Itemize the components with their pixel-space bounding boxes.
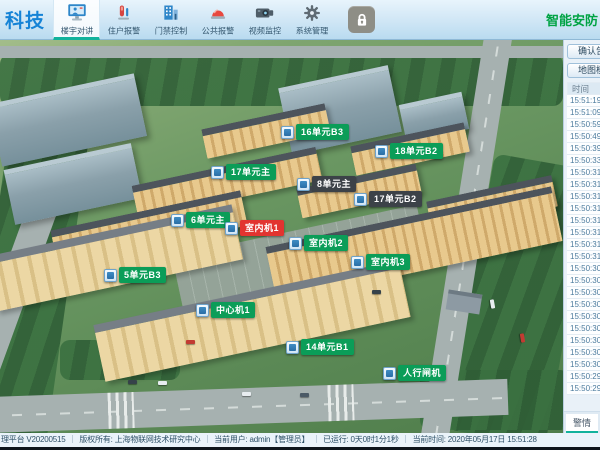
status-item: 当前用户: admin【管理员】 — [214, 435, 309, 444]
lock-icon[interactable] — [348, 6, 375, 33]
main-area: 16单元B318单元B217单元主8单元主17单元B26单元主室内机1室内机2室… — [0, 40, 600, 433]
status-separator: ｜ — [203, 435, 211, 444]
map-car — [158, 381, 167, 385]
alarm-time-row[interactable]: 15:50:31 — [567, 227, 600, 239]
status-item: 理平台 V20200515 — [1, 435, 66, 444]
device-marker[interactable]: 17单元主 — [211, 164, 276, 180]
device-icon — [196, 304, 209, 317]
alarm-time-row[interactable]: 15:50:30 — [567, 299, 600, 311]
device-marker[interactable]: 16单元B3 — [281, 124, 349, 140]
device-icon — [383, 367, 396, 380]
alarm-time-row[interactable]: 15:50:59 — [567, 119, 600, 131]
toolbar-item-label: 住户报警 — [107, 24, 139, 36]
map-car — [300, 393, 309, 397]
device-label: 17单元主 — [226, 164, 276, 180]
alarm-time-row[interactable]: 15:50:39 — [567, 143, 600, 155]
alarm-time-row[interactable]: 15:50:30 — [567, 347, 600, 359]
alarm-time-row[interactable]: 15:50:33 — [567, 155, 600, 167]
brand-logo: 科技 — [5, 6, 45, 33]
toolbar-item-label: 公共报警 — [201, 24, 233, 36]
map-car — [128, 380, 137, 384]
device-marker[interactable]: 中心机1 — [196, 302, 255, 318]
system-settings-icon — [302, 2, 322, 23]
road-centerline — [0, 397, 508, 417]
crosswalk — [107, 392, 134, 429]
alarm-time-row[interactable]: 15:50:30 — [567, 275, 600, 287]
device-marker[interactable]: 室内机1 — [225, 220, 284, 236]
status-item: 已运行: 0天0时1分1秒 — [323, 435, 399, 444]
device-label: 人行闸机 — [398, 365, 446, 381]
alarm-time-row[interactable]: 15:50:30 — [567, 359, 600, 371]
device-icon — [297, 178, 310, 191]
device-label: 中心机1 — [211, 302, 255, 318]
time-column-header: 时间 — [567, 82, 600, 95]
device-label: 室内机1 — [240, 220, 284, 236]
alarm-time-row[interactable]: 15:50:30 — [567, 311, 600, 323]
intercom-icon — [66, 2, 88, 23]
device-label: 14单元B1 — [301, 339, 354, 355]
toolbar-item-resident-alarm[interactable]: 住户报警 — [100, 0, 147, 40]
toolbar-item-label: 系统管理 — [295, 24, 327, 36]
device-marker[interactable]: 6单元主 — [171, 212, 230, 228]
status-separator: ｜ — [312, 435, 320, 444]
device-icon — [289, 237, 302, 250]
alarm-time-row[interactable]: 15:50:31 — [567, 251, 600, 263]
device-marker[interactable]: 5单元B3 — [104, 267, 166, 283]
alarm-time-row[interactable]: 15:51:19 — [567, 95, 600, 107]
device-label: 6单元主 — [186, 212, 230, 228]
community-map[interactable]: 16单元B318单元B217单元主8单元主17单元B26单元主室内机1室内机2室… — [0, 40, 563, 433]
public-alarm-icon — [208, 2, 228, 23]
device-marker[interactable]: 18单元B2 — [375, 143, 443, 159]
toolbar-item-label: 楼宇对讲 — [60, 24, 92, 36]
status-separator: ｜ — [402, 435, 410, 444]
device-icon — [286, 341, 299, 354]
alarm-time-row[interactable]: 15:50:30 — [567, 323, 600, 335]
device-label: 8单元主 — [312, 176, 356, 192]
tab-alarm[interactable]: 警情 — [566, 414, 598, 433]
device-marker[interactable]: 8单元主 — [297, 176, 356, 192]
footer: 理平台 V20200515｜版权所有: 上海物联网技术研究中心｜当前用户: ad… — [0, 433, 600, 450]
alarm-time-row[interactable]: 15:50:29 — [567, 371, 600, 383]
toolbar-item-intercom[interactable]: 楼宇对讲 — [53, 0, 100, 40]
main-toolbar: 楼宇对讲住户报警门禁控制公共报警视频监控系统管理 — [53, 0, 335, 40]
alarm-time-list[interactable]: 15:51:1915:51:0915:50:5915:50:4915:50:39… — [567, 95, 600, 397]
toolbar-item-public-alarm[interactable]: 公共报警 — [194, 0, 241, 40]
device-label: 5单元B3 — [119, 267, 166, 283]
map-mode-button[interactable]: 地图模式 — [567, 63, 600, 78]
alarm-time-row[interactable]: 15:50:31 — [567, 239, 600, 251]
alarm-time-row[interactable]: 15:50:49 — [567, 131, 600, 143]
alarm-time-row[interactable]: 15:51:09 — [567, 107, 600, 119]
alarm-time-row[interactable]: 15:50:31 — [567, 215, 600, 227]
device-icon — [211, 166, 224, 179]
video-monitor-icon — [254, 2, 276, 23]
device-label: 18单元B2 — [390, 143, 443, 159]
alarm-time-row[interactable]: 15:50:30 — [567, 287, 600, 299]
status-item: 当前时间: 2020年05月17日 15:51:28 — [413, 435, 537, 444]
device-marker[interactable]: 室内机2 — [289, 235, 348, 251]
map-car — [242, 392, 251, 396]
alarm-time-row[interactable]: 15:50:30 — [567, 263, 600, 275]
toolbar-item-label: 门禁控制 — [154, 24, 186, 36]
device-icon — [351, 256, 364, 269]
device-marker[interactable]: 室内机3 — [351, 254, 410, 270]
status-separator: ｜ — [69, 435, 77, 444]
device-icon — [171, 214, 184, 227]
device-label: 16单元B3 — [296, 124, 349, 140]
device-icon — [375, 145, 388, 158]
security-banner: 智能安防 — [546, 10, 598, 29]
map-car — [372, 290, 381, 294]
device-marker[interactable]: 14单元B1 — [286, 339, 354, 355]
alarm-time-row[interactable]: 15:50:31 — [567, 191, 600, 203]
alarm-time-row[interactable]: 15:50:31 — [567, 167, 600, 179]
alarm-time-row[interactable]: 15:50:30 — [567, 335, 600, 347]
device-label: 室内机2 — [304, 235, 348, 251]
map-car — [186, 340, 195, 344]
confirm-alarm-button[interactable]: 确认告警 — [567, 44, 600, 59]
status-item: 版权所有: 上海物联网技术研究中心 — [79, 435, 200, 444]
alarm-time-row[interactable]: 15:50:31 — [567, 179, 600, 191]
crosswalk — [327, 384, 354, 421]
device-marker[interactable]: 人行闸机 — [383, 365, 446, 381]
status-bar: 理平台 V20200515｜版权所有: 上海物联网技术研究中心｜当前用户: ad… — [0, 433, 600, 447]
alarm-time-row[interactable]: 15:50:31 — [567, 203, 600, 215]
device-label: 17单元B2 — [369, 191, 422, 207]
device-label: 室内机3 — [366, 254, 410, 270]
access-control-icon — [161, 2, 181, 23]
toolbar-item-access-control[interactable]: 门禁控制 — [147, 0, 194, 40]
device-icon — [104, 269, 117, 282]
alarm-time-row[interactable]: 15:50:29 — [567, 383, 600, 395]
device-icon — [225, 222, 238, 235]
alarm-sidebar: 确认告警 地图模式 时间 15:51:1915:51:0915:50:5915:… — [563, 40, 600, 433]
toolbar-item-video-monitor[interactable]: 视频监控 — [241, 0, 288, 40]
app-window: 科技 楼宇对讲住户报警门禁控制公共报警视频监控系统管理 智能安防 — [0, 0, 600, 450]
device-icon — [354, 193, 367, 206]
map-road — [0, 46, 563, 58]
resident-alarm-icon — [114, 2, 134, 23]
device-marker[interactable]: 17单元B2 — [354, 191, 422, 207]
toolbar-item-system-settings[interactable]: 系统管理 — [288, 0, 335, 40]
sidebar-tabbar: 警情 — [564, 411, 600, 433]
device-icon — [281, 126, 294, 139]
top-bar: 科技 楼宇对讲住户报警门禁控制公共报警视频监控系统管理 智能安防 — [0, 0, 600, 40]
toolbar-item-label: 视频监控 — [248, 24, 280, 36]
